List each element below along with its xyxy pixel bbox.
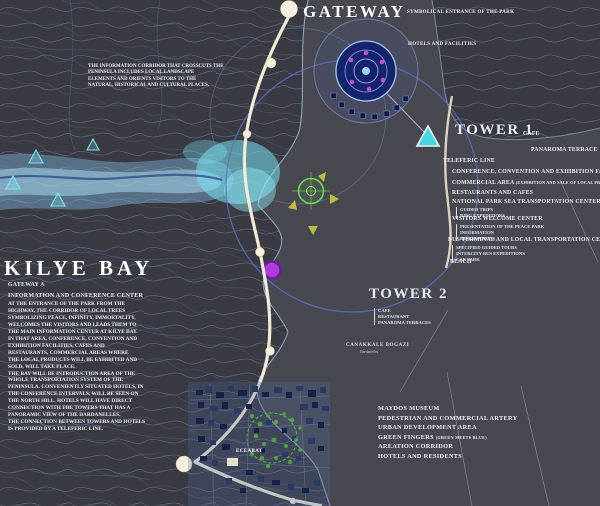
legend-item-pedestrian-artery: PEDESTRIAN AND COMMERCIAL ARTERY: [378, 414, 517, 424]
tower2-title: TOWER 2: [369, 286, 448, 303]
hotels-complex-icon: [314, 19, 418, 123]
kilye-description: AT THE ENTRANCE OF THE PARK FROM THE HIG…: [8, 301, 145, 433]
strait-subname: Dardanelles: [360, 350, 378, 354]
label-sea-transport-center: NATIONAL PARK SEA TRANSPORTATION CENTER: [452, 199, 600, 205]
town-area: [188, 382, 330, 506]
label-teleferic-line: TELEFERIC LINE: [443, 158, 495, 164]
tower1-cafe-label: CAFE: [523, 131, 540, 137]
eceabat-label: ECEABAT: [236, 449, 263, 454]
green-fingers-note: (GREEN MEETS BLUE): [436, 435, 487, 440]
commercial-area-text: COMMERCIAL AREA: [452, 180, 514, 186]
legend-item-hotels-residents: HOTELS AND RESIDENTS: [378, 452, 517, 462]
legend-item-urban-development: URBAN DEVELOPMENT AREA: [378, 423, 517, 433]
kilye-heading: INFORMATION AND CONFERENCE CENTER: [8, 293, 143, 299]
legend-item-green-fingers: GREEN FINGERS (GREEN MEETS BLUE): [378, 433, 517, 443]
gateway-title: GATEWAY: [303, 2, 406, 22]
label-visitors-welcome-center: VISITORS WELCOME CENTER: [452, 216, 543, 222]
label-restaurants-cafes: RESTAURANTS AND CAFES: [452, 190, 533, 196]
list-item: PRESENTATION OF THE PEACE PARK: [460, 224, 544, 230]
hotels-facilities-label: HOTELS AND FACILITIES: [408, 42, 476, 47]
eceabat-box-icon: [227, 458, 238, 466]
south-legend: MAYDOS MUSEUM PEDESTRIAN AND COMMERCIAL …: [378, 404, 517, 462]
tower1-terrace-label: PANAROMA TERRACE: [531, 147, 598, 153]
far-shore-land: [432, 0, 600, 140]
list-item: SPECIFIED GUIDED TOURS: [456, 245, 525, 251]
legend-item-areation-corridor: AREATION CORRIDOR: [378, 442, 517, 452]
strait-name: CANAKKALE BOGAZI: [346, 343, 409, 348]
masterplan-map: GATEWAY SYMBOLICAL ENTRANCE OF THE PARK …: [0, 0, 600, 506]
green-fingers-text: GREEN FINGERS: [378, 434, 434, 441]
gateway-a-label: GATEWAY A: [8, 282, 45, 288]
gateway-note: SYMBOLICAL ENTRANCE OF THE PARK: [407, 10, 514, 15]
list-item: INTERCITY BUS EXPEDITIONS: [456, 251, 525, 257]
kilye-bay-title: KILYE BAY: [4, 256, 153, 281]
legend-item-maydos-museum: MAYDOS MUSEUM: [378, 404, 517, 414]
label-conference-facilities: CONFERENCE, CONVENTION AND EXHIBITION FA…: [452, 169, 600, 175]
label-commercial-area: COMMERCIAL AREA (EXHIBITION AND SALE OF …: [452, 180, 600, 186]
commercial-area-note: (EXHIBITION AND SALE OF LOCAL PRODUCTS): [516, 180, 600, 185]
list-item: PANAROMA TERRACES: [378, 320, 431, 326]
label-bus-terminal: BUS TERMINAL AND LOCAL TRANSPORTATION CE…: [448, 237, 600, 243]
label-beach: BEACH: [450, 259, 472, 265]
tower2-sublist: CAFE RESTAURANT PANAROMA TERRACES: [374, 308, 431, 325]
corridor-note: THE INFORMATION CORRIDOR THAT CROSSCUTS …: [88, 64, 224, 90]
